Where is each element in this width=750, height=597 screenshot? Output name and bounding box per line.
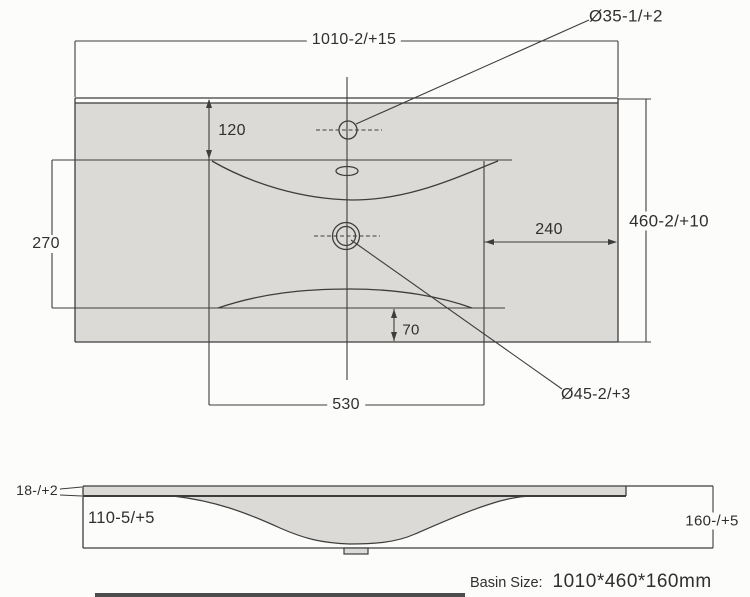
rim-thickness-leader-bottom [60,495,82,496]
drain-stub [344,548,368,554]
rim-thickness-leader-top [60,487,82,489]
dim-rim-thickness-label: 18-/+2 [16,483,58,497]
dim-bowl-depth-label: 270 [27,235,65,253]
dim-bowl-width-label: 530 [327,396,365,414]
bowl-section-profile [173,496,533,544]
countertop-slab-fill [83,486,626,496]
dim-overall-depth-label: 460-2/+10 [624,212,714,231]
basin-size-caption-label: Basin Size: [470,575,543,591]
dim-front-offset-label: 70 [402,323,419,338]
dim-drain-hole-label: Ø45-2/+3 [561,387,631,403]
dim-overall-height-label: 160-/+5 [680,513,743,530]
side-view [60,486,713,554]
basin-dimension-drawing: 1010-2/+15 460-2/+10 270 120 240 530 70 … [0,0,750,597]
dim-bowl-inner-depth-label: 110-5/+5 [88,510,155,527]
drawing-linework [0,0,750,597]
top-view [52,20,651,405]
dim-overall-width-label: 1010-2/+15 [307,31,401,49]
basin-size-caption: Basin Size: 1010*460*160mm [470,571,712,593]
dim-faucet-offset-label: 120 [218,123,246,139]
dim-drain-offset-label: 240 [535,222,563,238]
basin-size-caption-value: 1010*460*160mm [553,571,712,593]
dim-faucet-hole-label: Ø35-1/+2 [589,8,663,25]
cropped-edge-artifact [95,593,465,597]
